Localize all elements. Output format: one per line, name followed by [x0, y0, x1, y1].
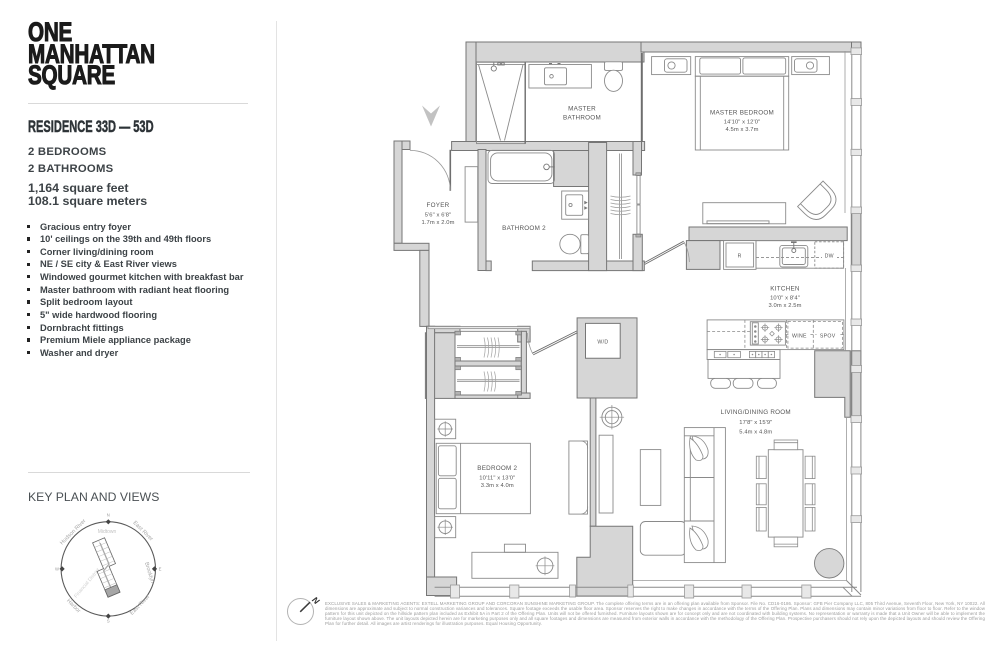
svg-text:5.4m x 4.8m: 5.4m x 4.8m	[739, 429, 772, 435]
svg-text:10'11" x 13'0": 10'11" x 13'0"	[479, 476, 515, 482]
svg-text:MASTER BEDROOM: MASTER BEDROOM	[710, 110, 774, 117]
svg-text:LIVING/DINING ROOM: LIVING/DINING ROOM	[721, 409, 791, 416]
svg-text:WINE: WINE	[792, 334, 807, 340]
svg-text:BEDROOM 2: BEDROOM 2	[477, 465, 517, 472]
svg-text:3.3m x 4.0m: 3.3m x 4.0m	[481, 483, 514, 489]
svg-text:W/D: W/D	[597, 340, 608, 346]
svg-text:E: E	[159, 567, 162, 572]
svg-text:3.0m x 2.5m: 3.0m x 2.5m	[769, 303, 802, 309]
svg-text:BATHROOM: BATHROOM	[563, 115, 601, 122]
svg-text:1.7m x 2.0m: 1.7m x 2.0m	[422, 220, 455, 226]
svg-text:17'8" x 15'9": 17'8" x 15'9"	[739, 420, 772, 426]
svg-text:Hudson River: Hudson River	[59, 518, 87, 546]
svg-text:5'6" x 6'8": 5'6" x 6'8"	[425, 212, 451, 218]
svg-text:SPOV: SPOV	[820, 334, 836, 340]
svg-text:S: S	[107, 619, 110, 624]
svg-text:Brooklyn: Brooklyn	[143, 561, 155, 584]
svg-text:14'10" x 12'0": 14'10" x 12'0"	[724, 120, 760, 126]
svg-text:FOYER: FOYER	[427, 202, 450, 209]
svg-text:BATHROOM 2: BATHROOM 2	[502, 225, 546, 232]
svg-text:KITCHEN: KITCHEN	[770, 285, 800, 292]
svg-text:10'0" x 8'4": 10'0" x 8'4"	[770, 296, 800, 302]
svg-text:East River: East River	[129, 594, 151, 617]
svg-text:R: R	[738, 254, 742, 260]
svg-text:DW: DW	[825, 254, 834, 260]
svg-text:East River: East River	[131, 520, 154, 543]
svg-text:N: N	[107, 513, 110, 518]
svg-text:W: W	[55, 567, 59, 572]
svg-text:MASTER: MASTER	[568, 106, 596, 113]
svg-text:Midtown: Midtown	[98, 529, 117, 535]
svg-text:4.5m x 3.7m: 4.5m x 3.7m	[726, 127, 759, 133]
